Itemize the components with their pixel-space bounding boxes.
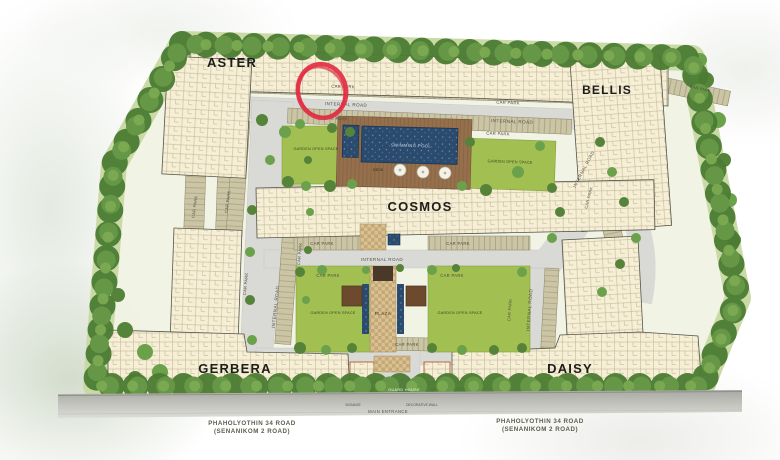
building-label-cosmos: COSMOS (388, 199, 453, 214)
pool-area (336, 116, 472, 189)
water-feature-north (388, 234, 400, 245)
public-road-label-left-line1: PHAHOLYOTHIN 34 ROAD (208, 420, 296, 427)
building-gerbera-west-wing (170, 228, 242, 340)
garden-open-space-label: GARDEN OPEN SPACE (293, 147, 338, 151)
signage-label: SIGNAGE (345, 403, 361, 407)
building-label-bellis: BELLIS (582, 83, 632, 97)
guard-house-label: GUARD HOUSE (388, 388, 420, 392)
building-label-gerbera: GERBERA (198, 361, 271, 376)
entrance-court (374, 356, 410, 372)
building-label-daisy: DAISY (547, 361, 593, 376)
pavilion-east (406, 286, 426, 306)
car-park-label: CAR PARK (486, 130, 510, 136)
main-entrance-label: MAIN ENTRANCE (368, 409, 408, 414)
site-plan-image: ASTER BELLIS COSMOS GERBERA DAISY CAR PA… (0, 0, 780, 460)
pavilion-west (342, 286, 362, 306)
car-park-label: CAR PARK (496, 99, 520, 105)
plaza-label: PLAZA (375, 311, 392, 316)
car-park-label: CAR PARK (446, 241, 470, 246)
plaza-shade-structure (373, 266, 393, 281)
decorative-wall-label: DECORATIVE WALL (406, 403, 438, 407)
public-road-label-left-line2: (SENANIKOM 2 ROAD) (214, 428, 290, 435)
site-plan-canvas: ASTER BELLIS COSMOS GERBERA DAISY CAR PA… (0, 0, 780, 460)
car-park-label: CAR PARK (395, 342, 419, 347)
car-park-label: CAR PARK (310, 241, 334, 246)
deck-label: DECK (373, 168, 384, 172)
garden-open-space-label: GARDEN OPEN SPACE (437, 311, 482, 315)
garden-plaza-east (428, 266, 530, 352)
swimming-pool-label: SWIMMING POOL (391, 142, 432, 148)
car-park-label: CAR PARK (316, 273, 340, 278)
public-road-label-right-line1: PHAHOLYOTHIN 34 ROAD (496, 418, 584, 425)
court-behind-cosmos (360, 224, 386, 250)
building-label-aster: ASTER (207, 55, 257, 70)
reflecting-pool-east (397, 284, 404, 334)
public-road-label-right-line2: (SENANIKOM 2 ROAD) (502, 426, 578, 433)
internal-road-label: INTERNAL ROAD (361, 257, 404, 262)
garden-open-space-label: GARDEN OPEN SPACE (310, 311, 355, 315)
building-aster-west-wing (162, 56, 252, 178)
car-park-label: CAR PARK (440, 273, 464, 278)
reflecting-pool-west (362, 284, 369, 334)
